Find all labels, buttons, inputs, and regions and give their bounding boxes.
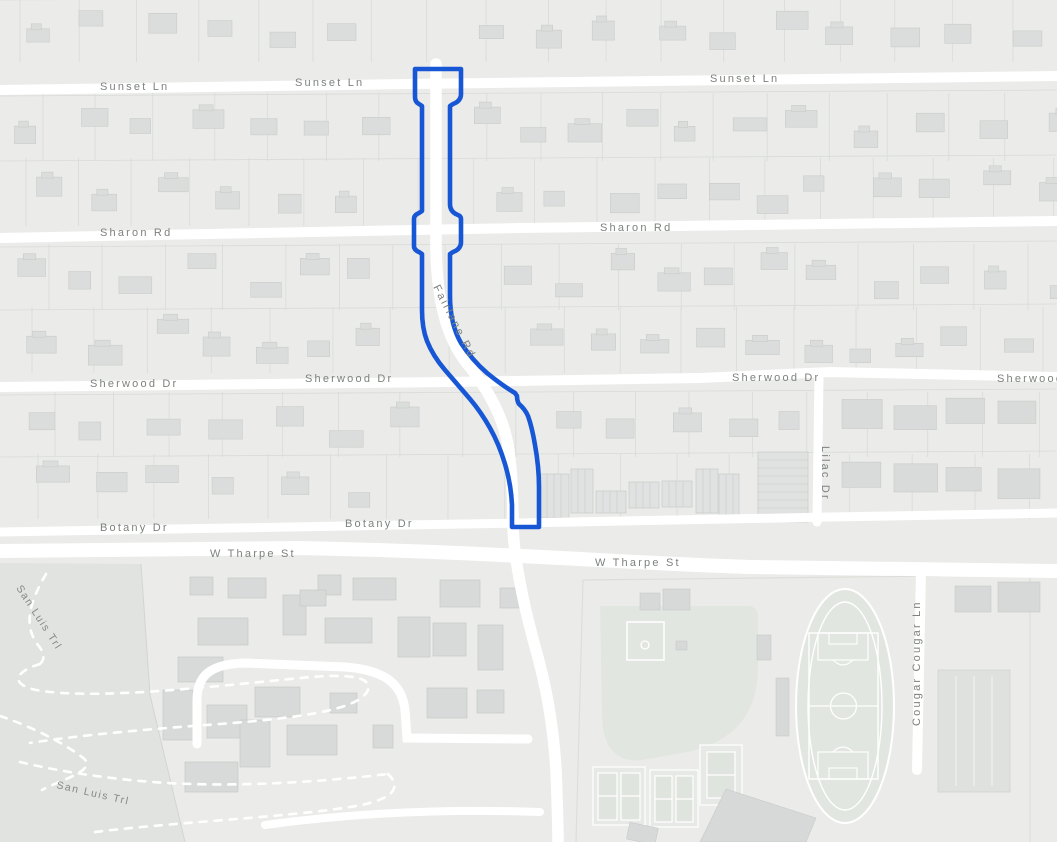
map-canvas[interactable]: Sunset Ln Sunset Ln Sunset Ln Sharon Rd … — [0, 0, 1057, 842]
label-sherwood-2: Sherwood Dr — [305, 373, 393, 385]
label-lilac: Lilac Dr — [819, 446, 831, 501]
label-sharon-2: Sharon Rd — [600, 222, 672, 234]
label-sunset-3: Sunset Ln — [710, 73, 779, 85]
label-tharpe-1: W Tharpe St — [210, 548, 296, 560]
road-lilac — [817, 376, 819, 522]
label-sharon-1: Sharon Rd — [100, 227, 172, 239]
label-sherwood-4: Sherwood Dr — [997, 373, 1057, 385]
label-botany-2: Botany Dr — [345, 518, 414, 530]
label-cougar: Cougar Cougar Ln — [911, 600, 923, 726]
label-botany-1: Botany Dr — [100, 522, 169, 534]
label-sunset-1: Sunset Ln — [100, 81, 169, 93]
label-sherwood-3: Sherwood Dr — [732, 372, 820, 384]
label-sherwood-1: Sherwood Dr — [90, 378, 178, 390]
label-tharpe-2: W Tharpe St — [595, 557, 681, 569]
map-svg[interactable]: Sunset Ln Sunset Ln Sunset Ln Sharon Rd … — [0, 0, 1057, 842]
label-sunset-2: Sunset Ln — [295, 77, 364, 89]
running-track — [796, 589, 894, 823]
